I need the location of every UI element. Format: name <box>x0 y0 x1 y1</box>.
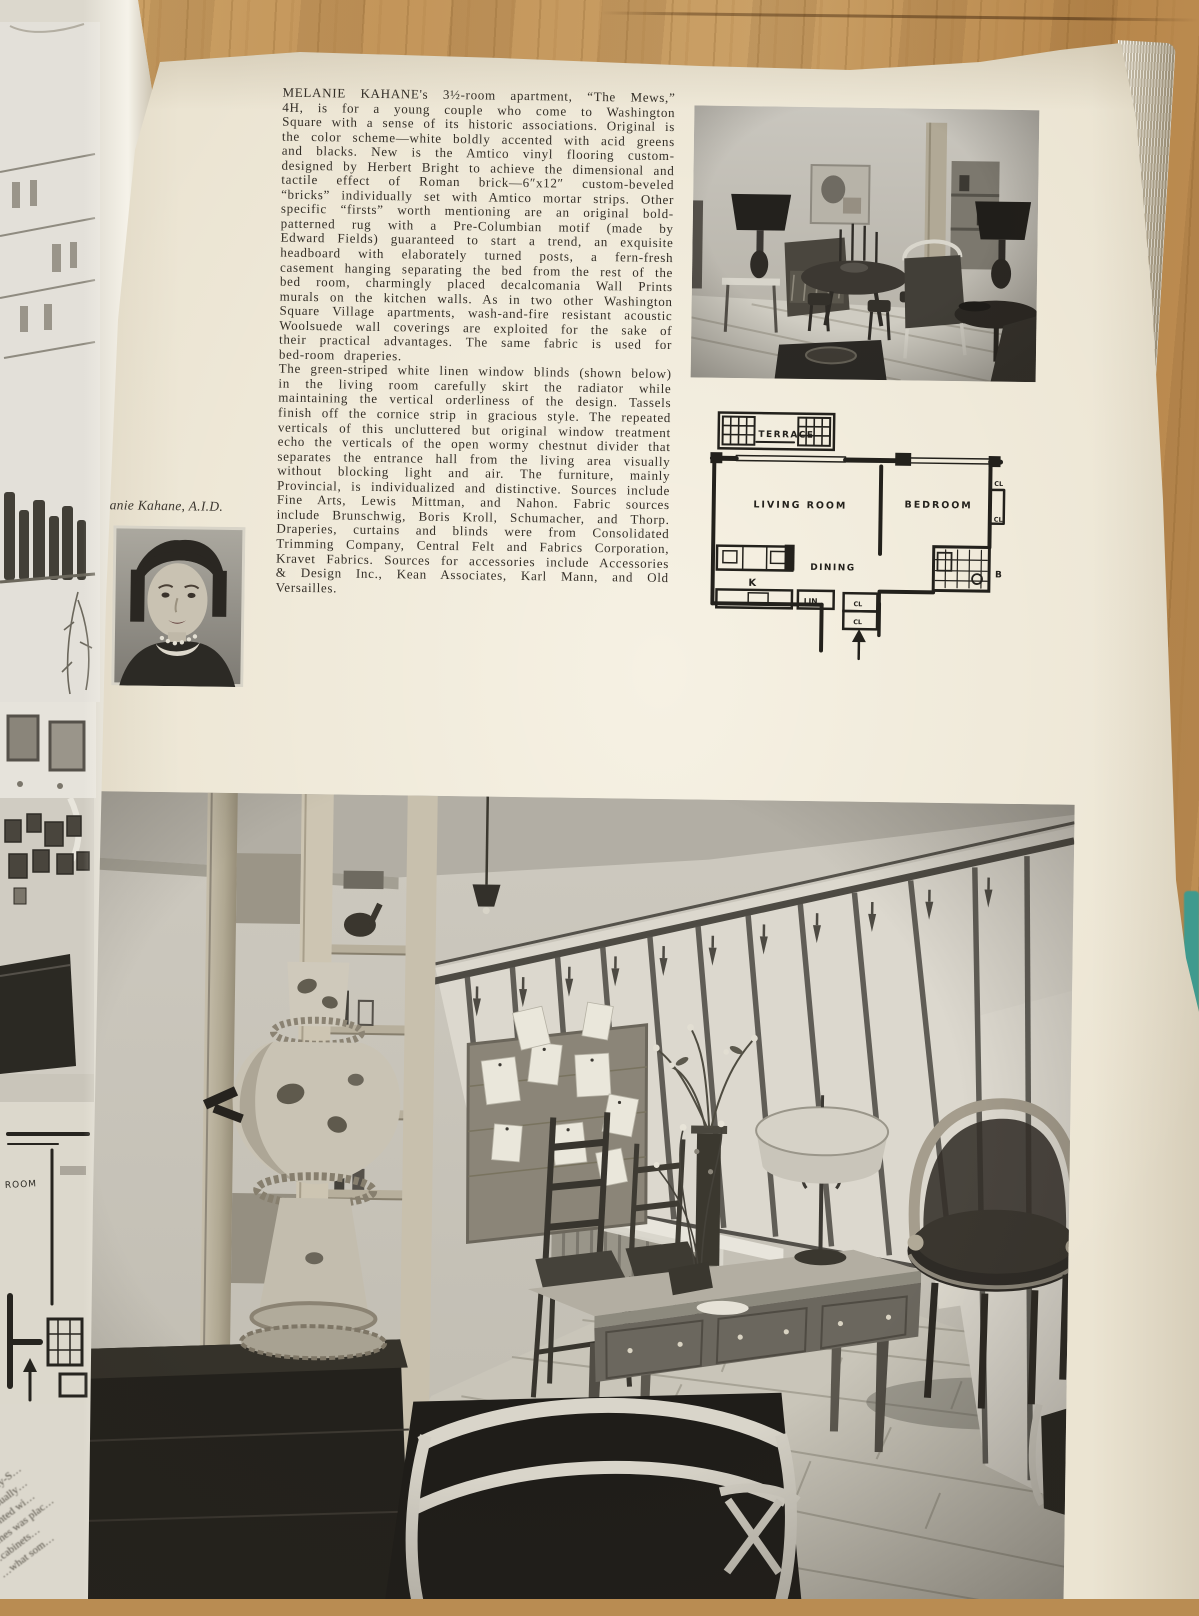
bath-label: B <box>995 570 1002 580</box>
prev-text-line: …accented wi… <box>0 1406 95 1546</box>
article-paragraph-1: MELANIE KAHANE's 3½-room apartment, “The… <box>279 86 676 368</box>
kitchen-label: K <box>748 578 756 589</box>
closet-label: CL <box>994 516 1003 524</box>
photo-living-room-large <box>78 791 1074 1615</box>
floor-plan: TERRACE LIVING ROOM BEDROOM DINING K LIN… <box>694 393 1016 669</box>
dining-label: DINING <box>810 563 855 574</box>
prev-photo-cabinet <box>0 702 96 798</box>
article-paragraph-2: The green-striped white linen window bli… <box>276 362 672 600</box>
plan-room-label: ROOM <box>5 1179 38 1191</box>
living-room-label: LIVING ROOM <box>753 499 847 511</box>
prev-photo-bar-shelves <box>0 22 100 702</box>
photo-living-room-small <box>691 105 1040 382</box>
prev-floorplan-fragment: ROOM <box>0 1104 92 1404</box>
magazine-page: MELANIE KAHANE's 3½-room apartment, “The… <box>0 0 1199 1599</box>
linen-label: LIN <box>804 597 818 606</box>
entrance-arrow-icon <box>23 1358 37 1372</box>
prev-text-line: …tive visually… <box>0 1406 95 1534</box>
entrance-arrow-icon <box>852 629 866 642</box>
page-content: MELANIE KAHANE's 3½-room apartment, “The… <box>0 0 1199 1613</box>
prev-text-line: …sky's “City-S… <box>0 1406 95 1522</box>
bedroom-label: BEDROOM <box>904 500 972 512</box>
terrace-label: TERRACE <box>758 430 814 441</box>
prev-text-fragment: …sky's “City-S… …tive visually… …accente… <box>0 1406 95 1599</box>
plant-sprig <box>62 592 92 694</box>
sideboard <box>0 954 76 1074</box>
prev-photo-gallery-wall <box>0 798 94 1102</box>
closet-label: CL <box>853 618 862 626</box>
closet-label: CL <box>853 600 862 608</box>
portrait-photo <box>111 525 245 687</box>
closet-label: CL <box>994 480 1003 488</box>
prev-text-line: …what som… <box>0 1432 95 1582</box>
article-text: MELANIE KAHANE's 3½-room apartment, “The… <box>276 86 676 601</box>
prev-text-line: …cabinets… <box>0 1420 95 1570</box>
lamp-glow <box>70 798 79 860</box>
prev-text-line: …times was plac… <box>0 1408 95 1558</box>
